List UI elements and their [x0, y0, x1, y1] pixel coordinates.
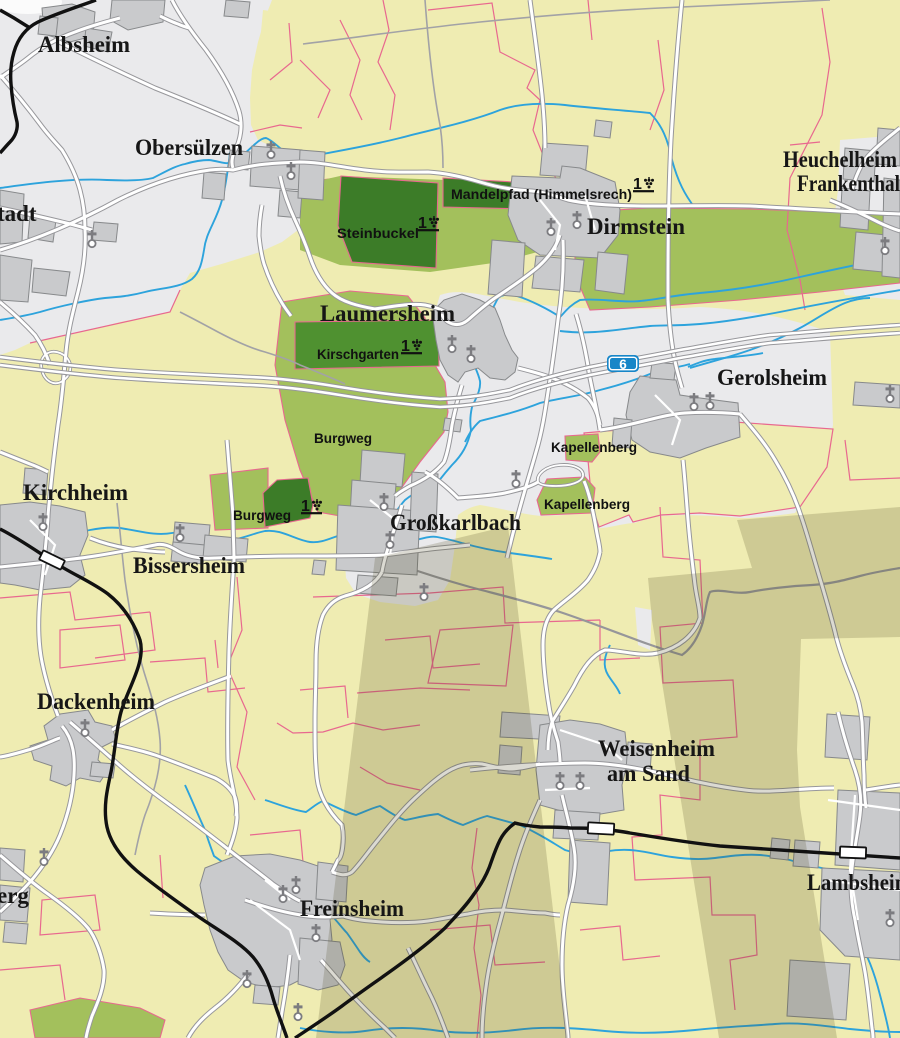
- svg-text:Mandelpfad (Himmelsrech): Mandelpfad (Himmelsrech): [451, 186, 632, 202]
- svg-text:Albsheim: Albsheim: [38, 32, 130, 57]
- svg-text:Gerolsheim: Gerolsheim: [717, 365, 827, 390]
- svg-text:Kirschgarten: Kirschgarten: [317, 346, 399, 362]
- svg-text:Frankenthal: Frankenthal: [797, 171, 900, 196]
- svg-text:Burgweg: Burgweg: [233, 507, 291, 523]
- svg-text:stadt: stadt: [0, 201, 37, 226]
- svg-text:Großkarlbach: Großkarlbach: [390, 510, 521, 535]
- svg-text:am Sand: am Sand: [607, 761, 690, 786]
- svg-text:6: 6: [619, 357, 627, 372]
- svg-text:Bissersheim: Bissersheim: [133, 553, 245, 578]
- svg-text:Dackenheim: Dackenheim: [37, 689, 155, 714]
- svg-text:Laumersheim: Laumersheim: [320, 301, 455, 326]
- svg-text:Lambsheim: Lambsheim: [807, 870, 900, 895]
- svg-text:Obersülzen: Obersülzen: [135, 135, 243, 160]
- svg-text:Kirchheim: Kirchheim: [23, 480, 128, 505]
- svg-text:Dirmstein: Dirmstein: [587, 214, 685, 239]
- svg-text:Kapellenberg: Kapellenberg: [551, 439, 637, 455]
- svg-text:Freinsheim: Freinsheim: [300, 896, 404, 921]
- svg-text:Burgweg: Burgweg: [314, 430, 372, 446]
- svg-text:Steinbuckel: Steinbuckel: [337, 225, 419, 241]
- svg-text:Heuchelheim: Heuchelheim: [783, 147, 897, 172]
- svg-text:Weisenheim: Weisenheim: [598, 736, 715, 761]
- svg-text:Kapellenberg: Kapellenberg: [544, 496, 630, 512]
- svg-text:erg: erg: [0, 883, 29, 908]
